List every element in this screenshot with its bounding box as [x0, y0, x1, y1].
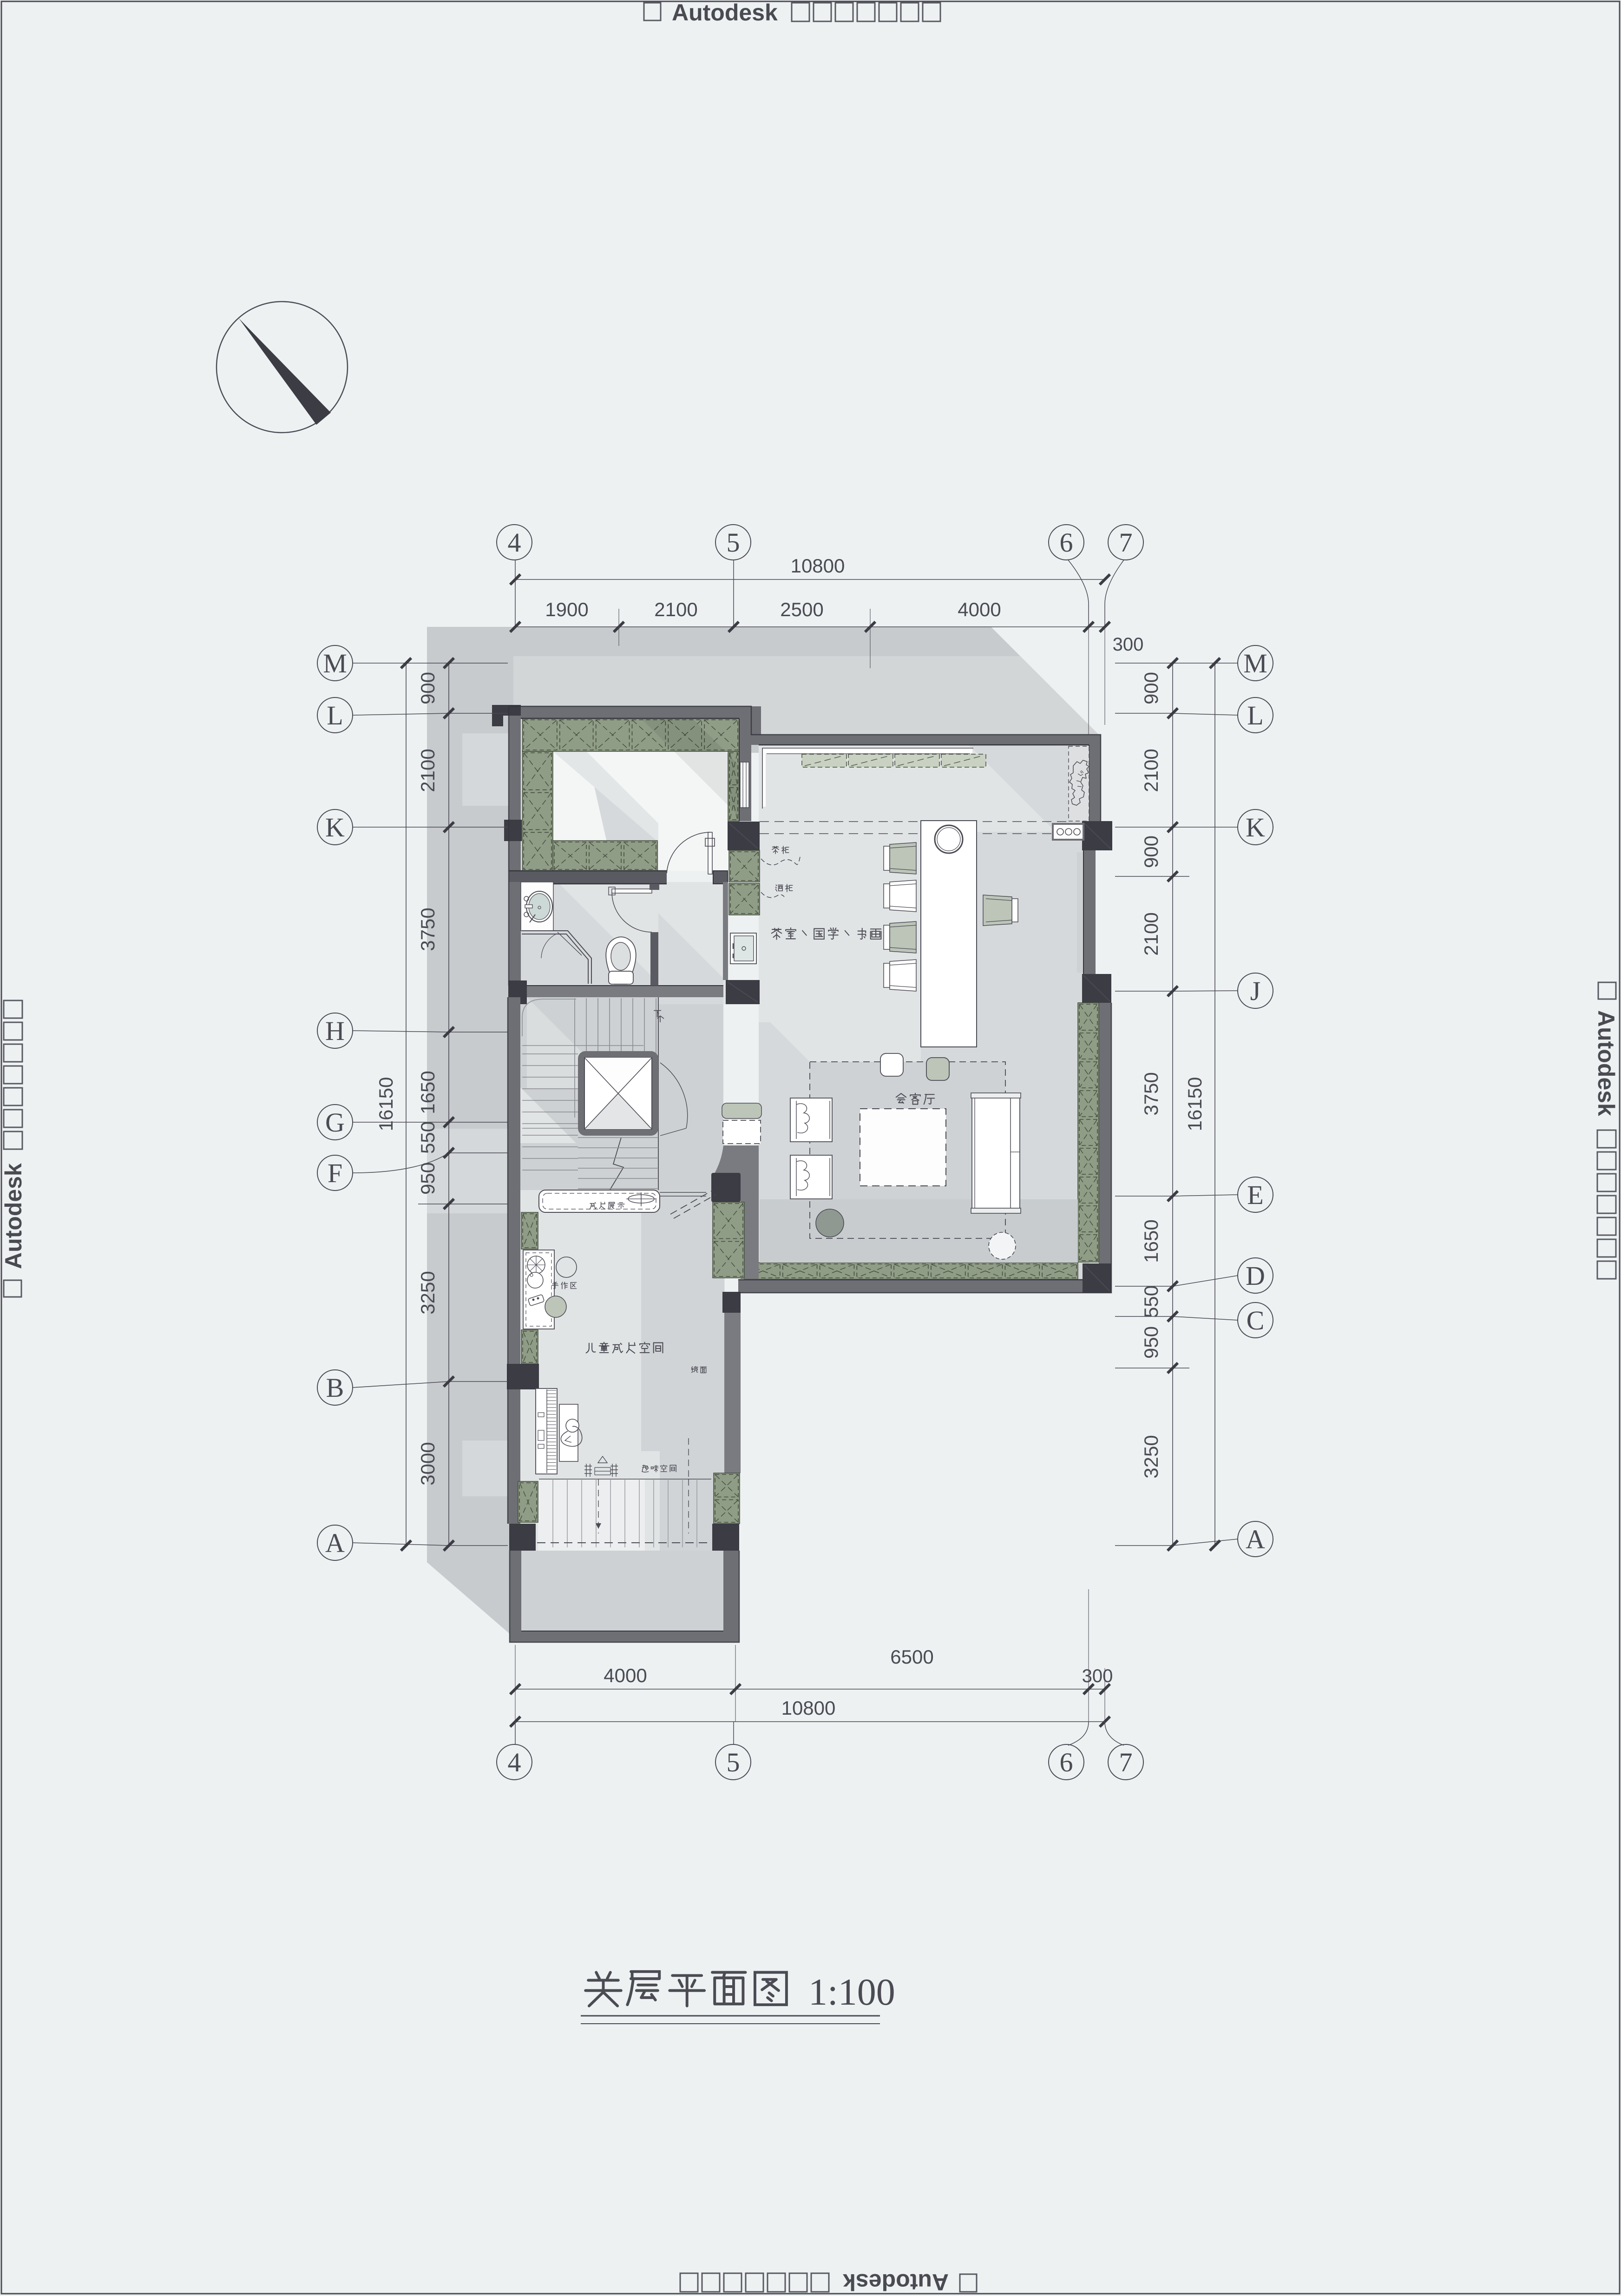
svg-text:H: H — [325, 1016, 345, 1046]
svg-text:950: 950 — [417, 1162, 439, 1195]
svg-text:2100: 2100 — [417, 749, 439, 792]
svg-text:B: B — [326, 1373, 344, 1403]
svg-text:7: 7 — [1119, 1747, 1133, 1777]
svg-text:3250: 3250 — [1140, 1435, 1162, 1478]
svg-text:550: 550 — [1140, 1285, 1162, 1318]
svg-text:300: 300 — [1082, 1666, 1113, 1686]
svg-text:G: G — [325, 1107, 345, 1138]
svg-text:3750: 3750 — [1140, 1072, 1162, 1115]
svg-text:F: F — [328, 1158, 342, 1188]
svg-text:4000: 4000 — [958, 599, 1001, 620]
svg-text:E: E — [1247, 1180, 1263, 1210]
svg-text:Autodesk: Autodesk — [672, 0, 778, 26]
svg-text:10800: 10800 — [781, 1697, 836, 1719]
svg-text:2100: 2100 — [1140, 912, 1162, 955]
svg-text:900: 900 — [1140, 672, 1162, 704]
svg-text:C: C — [1247, 1305, 1265, 1335]
svg-text:3000: 3000 — [417, 1442, 439, 1485]
svg-text:J: J — [1250, 976, 1261, 1006]
svg-text:3750: 3750 — [417, 908, 439, 951]
svg-text:6: 6 — [1060, 1747, 1073, 1777]
svg-text:5: 5 — [727, 1747, 740, 1777]
svg-text:L: L — [1247, 700, 1263, 730]
svg-text:Autodesk: Autodesk — [0, 1163, 26, 1269]
svg-text:900: 900 — [417, 672, 439, 704]
svg-text:1:100: 1:100 — [808, 1971, 895, 2013]
svg-text:4: 4 — [508, 527, 521, 558]
svg-text:16150: 16150 — [375, 1077, 397, 1132]
svg-text:10800: 10800 — [791, 555, 845, 577]
svg-text:M: M — [1243, 648, 1267, 678]
svg-text:7: 7 — [1119, 527, 1133, 558]
svg-text:1650: 1650 — [1140, 1219, 1162, 1263]
svg-text:D: D — [1246, 1261, 1265, 1291]
svg-text:4: 4 — [508, 1747, 521, 1777]
svg-text:5: 5 — [727, 527, 740, 558]
svg-text:2500: 2500 — [780, 599, 823, 620]
svg-text:L: L — [327, 700, 343, 730]
svg-text:900: 900 — [1140, 836, 1162, 868]
svg-text:Autodesk: Autodesk — [1593, 1010, 1619, 1116]
svg-text:6: 6 — [1060, 527, 1073, 558]
svg-text:550: 550 — [417, 1121, 439, 1154]
svg-text:1650: 1650 — [417, 1071, 439, 1114]
svg-text:16150: 16150 — [1184, 1077, 1206, 1132]
svg-text:A: A — [325, 1528, 345, 1558]
svg-text:950: 950 — [1140, 1326, 1162, 1359]
svg-text:A: A — [1246, 1524, 1265, 1554]
svg-text:300: 300 — [1113, 634, 1144, 655]
svg-text:M: M — [323, 648, 347, 678]
svg-text:Autodesk: Autodesk — [843, 2269, 949, 2295]
svg-text:3250: 3250 — [417, 1271, 439, 1314]
svg-text:4000: 4000 — [604, 1664, 647, 1686]
svg-text:1900: 1900 — [545, 599, 588, 620]
svg-text:6500: 6500 — [890, 1646, 933, 1668]
svg-text:K: K — [1246, 812, 1265, 842]
svg-text:2100: 2100 — [654, 599, 697, 620]
svg-text:K: K — [325, 812, 345, 842]
svg-text:2100: 2100 — [1140, 749, 1162, 792]
